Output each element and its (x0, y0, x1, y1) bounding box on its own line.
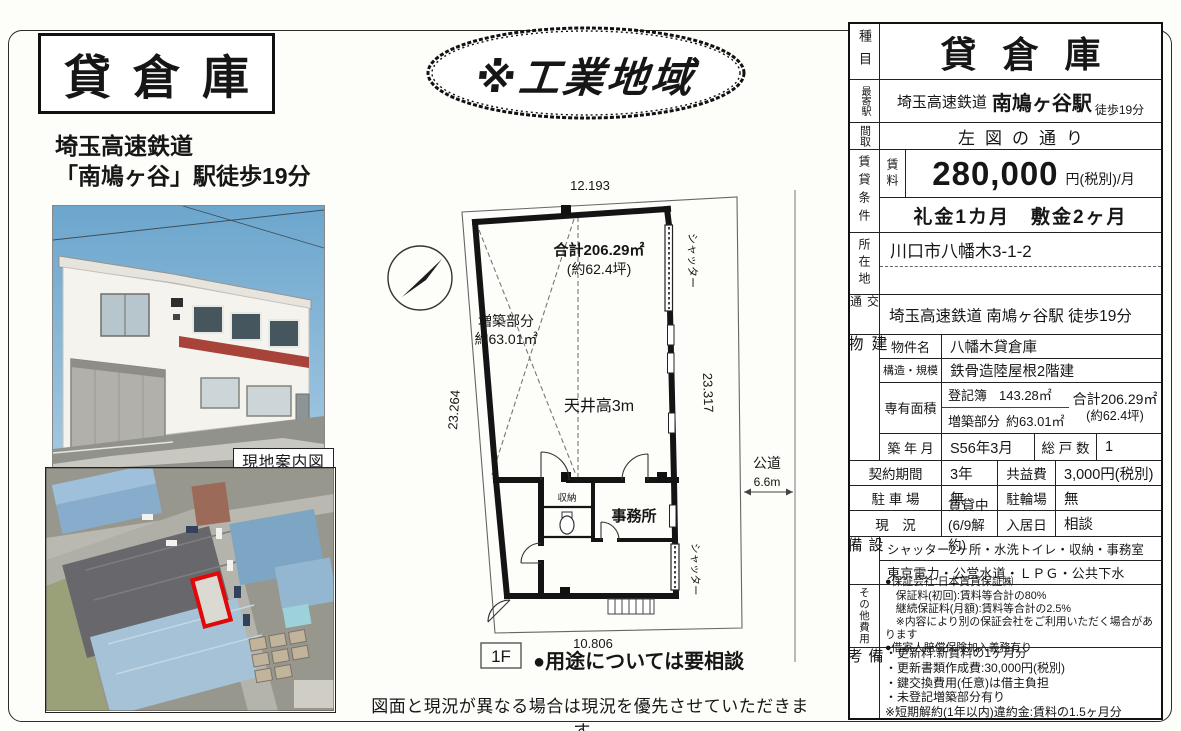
terms-label-cell: 賃貸条件 (850, 150, 880, 232)
contract-label: 契約期間 (850, 461, 942, 485)
annex-area-label: 約63.01㎡ (474, 331, 537, 347)
structure-value: 鉄骨造陸屋根2階建 (942, 359, 1161, 382)
station-label: 最寄駅 (857, 86, 872, 116)
dim-right-label: 23.317 (700, 373, 716, 413)
bottom-note: 図面と現況が異なる場合は現況を優先させていただきます。 (350, 692, 830, 731)
row-transport: 交通 埼玉高速鉄道 南鳩ヶ谷駅 徒歩19分 (850, 295, 1161, 335)
status-label: 現 況 (850, 511, 942, 536)
area-reg-label: 登記簿 (948, 385, 987, 404)
spec-table: 種目 貸倉庫 最寄駅 埼玉高速鉄道 南鳩ヶ谷駅 徒歩19分 間取 左図の通り 賃… (848, 22, 1163, 720)
contract-value: 3年 (942, 461, 998, 485)
row-bname: 物件名 八幡木貸倉庫 (880, 335, 1161, 359)
shutter-lower-label: シャッター (689, 543, 701, 596)
notes-line: ・未登記増築部分有り (885, 690, 1161, 705)
total-area-tsubo-label: (約62.4坪) (567, 261, 632, 277)
station-name: 南鳩ヶ谷駅 (992, 87, 1092, 116)
address-label-cell: 所在地 (850, 233, 880, 294)
address-value: 川口市八幡木3-1-2 (880, 233, 1161, 267)
bname-label: 物件名 (880, 335, 942, 358)
building-photo (52, 205, 325, 469)
area-label: 専有面積 (880, 383, 942, 434)
bottom-note-text: 図面と現況が異なる場合は現況を優先させていただきます。 (350, 692, 830, 731)
other-fees-line: ●保証会社:日本賃貸保証㈱ (885, 576, 1161, 589)
title-box: 貸倉庫 (38, 33, 275, 114)
dim-top-label: 12.193 (570, 178, 610, 193)
aerial-map (45, 467, 336, 713)
row-contract: 契約期間 3年 共益費 3,000円(税別) (850, 461, 1161, 486)
access-text: 埼玉高速鉄道 「南鳩ヶ谷」駅徒歩19分 (55, 131, 311, 192)
rent-value: 280,000 (932, 155, 1058, 193)
notes-content: ・更新料:新賃料の1ヶ月分 ・更新書類作成費:30,000円(税別) ・鍵交換費… (880, 648, 1161, 718)
row-layout: 間取 左図の通り (850, 123, 1161, 150)
station-value: 埼玉高速鉄道 南鳩ヶ谷駅 徒歩19分 (880, 80, 1161, 122)
row-category: 種目 貸倉庫 (850, 24, 1161, 80)
rent-label: 賃料 (884, 158, 901, 190)
row-other-fees: その他費用 ●保証会社:日本賃貸保証㈱ 保証料(初回):賃料等合計の80% 継続… (850, 585, 1161, 648)
units-label: 総 戸 数 (1035, 434, 1097, 460)
total-area-label: 合計206.29㎡ (553, 241, 645, 259)
fee-label: 共益費 (998, 461, 1056, 485)
other-fees-line: ※内容により別の保証会社をご利用いただく場合があります (885, 616, 1161, 642)
road-width-label: 6.6m (754, 475, 781, 489)
bicycle-label: 駐輪場 (998, 486, 1056, 510)
bicycle-value: 無 (1056, 486, 1161, 510)
layout-value: 左図の通り (880, 123, 1161, 149)
other-fees-line: 保証料(初回):賃料等合計の80% (885, 590, 1161, 603)
area-annex-label: 増築部分 (948, 411, 1000, 430)
station-pre: 埼玉高速鉄道 (897, 91, 987, 112)
access-line-1: 埼玉高速鉄道 (55, 131, 311, 161)
area-total-tsubo: (約62.4坪) (1073, 409, 1158, 425)
transport-label: 交通 (848, 295, 882, 334)
dim-left-label: 23.264 (445, 389, 463, 430)
page-title: 貸倉庫 (42, 39, 271, 108)
rent-value-cell: 280,000 円(税別)/月 (906, 150, 1161, 197)
annex-label: 増築部分 (478, 313, 534, 329)
units-value: 1 (1097, 434, 1161, 460)
transport-label-cell: 交通 (850, 295, 880, 334)
access-line-2: 「南鳩ヶ谷」駅徒歩19分 (55, 161, 311, 191)
transport-value: 埼玉高速鉄道 南鳩ヶ谷駅 徒歩19分 (880, 295, 1161, 334)
area-annex-line: 増築部分 約63.01㎡ (942, 408, 1069, 433)
station-label-cell: 最寄駅 (850, 80, 880, 122)
building-content: 物件名 八幡木貸倉庫 構造・規模 鉄骨造陸屋根2階建 専有面積 登記簿 143.… (880, 335, 1161, 460)
rent-label-cell: 賃料 (880, 150, 906, 197)
notes-line: ・更新料:新賃料の1ヶ月分 (885, 646, 1161, 661)
row-rent: 賃料 280,000 円(税別)/月 (880, 150, 1161, 198)
fee-value: 3,000円(税別) (1056, 461, 1161, 485)
area-reg-value: 143.28㎡ (999, 385, 1052, 404)
status-value: 賃貸中(6/9解約) (942, 511, 998, 536)
building-label-cell: 建物 (850, 335, 880, 460)
area-detail: 登記簿 143.28㎡ 増築部分 約63.01㎡ (942, 383, 1069, 434)
aerial-map-image (46, 468, 334, 711)
area-reg-line: 登記簿 143.28㎡ (942, 383, 1069, 408)
row-terms: 賃貸条件 賃料 280,000 円(税別)/月 礼金1カ月 敷金2ヶ月 (850, 150, 1161, 233)
row-address: 所在地 川口市八幡木3-1-2 (850, 233, 1161, 295)
built-value: S56年3月 (942, 434, 1035, 460)
category-value: 貸倉庫 (880, 24, 1161, 79)
road-label: 公道 (753, 455, 781, 471)
notes-label-cell: 備考 (850, 648, 880, 718)
address-blank-line (880, 267, 1161, 294)
terms-label: 賃貸条件 (856, 155, 873, 227)
rent-unit: 円(税別)/月 (1066, 159, 1135, 189)
movein-value: 相談 (1056, 511, 1161, 536)
equip-label-cell: 設備 (850, 537, 880, 584)
notes-line: ・鍵交換費用(任意)は借主負担 (885, 676, 1161, 691)
row-built: 築 年 月 S56年3月 総 戸 数 1 (880, 434, 1161, 460)
category-label-cell: 種目 (850, 24, 880, 79)
usage-note: ●用途については要相談 (533, 649, 745, 673)
layout-label-cell: 間取 (850, 123, 880, 149)
structure-label: 構造・規模 (880, 359, 942, 382)
row-parking: 駐 車 場 無 駐輪場 無 (850, 486, 1161, 511)
other-fees-label: その他費用 (857, 587, 872, 645)
row-status: 現 況 賃貸中(6/9解約) 入居日 相談 (850, 511, 1161, 537)
zone-badge: ※工業地域 (424, 24, 748, 123)
address-label: 所在地 (856, 238, 873, 289)
deposit-value: 礼金1カ月 敷金2ヶ月 (880, 198, 1161, 232)
area-total-lines: 合計206.29㎡ (約62.4坪) (1073, 391, 1158, 424)
area-annex-value: 約63.01㎡ (1006, 411, 1065, 430)
building-photo-image (53, 206, 324, 468)
row-structure: 構造・規模 鉄骨造陸屋根2階建 (880, 359, 1161, 383)
shutter-right-label: シャッター (686, 233, 699, 288)
built-label: 築 年 月 (880, 434, 942, 460)
floor-plan-drawing: 12.193 23.264 23.317 10.806 合計206.29㎡ (約… (365, 175, 845, 705)
equip-line-1: シャッター2ヶ所・水洗トイレ・収納・事務室 (880, 537, 1161, 561)
office-label: 事務所 (611, 507, 656, 525)
station-walk: 徒歩19分 (1095, 101, 1144, 118)
notes-line: ・更新書類作成費:30,000円(税別) (885, 661, 1161, 676)
category-label: 種目 (855, 29, 874, 75)
storage-label: 収納 (557, 492, 576, 504)
other-fees-content: ●保証会社:日本賃貸保証㈱ 保証料(初回):賃料等合計の80% 継続保証料(月額… (880, 585, 1161, 647)
ceiling-height-label: 天井高3m (564, 397, 634, 415)
floor-plan: 12.193 23.264 23.317 10.806 合計206.29㎡ (約… (365, 175, 845, 705)
address-content: 川口市八幡木3-1-2 (880, 233, 1161, 294)
row-notes: 備考 ・更新料:新賃料の1ヶ月分 ・更新書類作成費:30,000円(税別) ・鍵… (850, 648, 1161, 718)
terms-content: 賃料 280,000 円(税別)/月 礼金1カ月 敷金2ヶ月 (880, 150, 1161, 232)
parking-label: 駐 車 場 (850, 486, 942, 510)
row-area: 専有面積 登記簿 143.28㎡ 増築部分 約63.01㎡ 合計 (880, 383, 1161, 435)
row-station: 最寄駅 埼玉高速鉄道 南鳩ヶ谷駅 徒歩19分 (850, 80, 1161, 123)
movein-label: 入居日 (998, 511, 1056, 536)
flyer-page: 貸倉庫 埼玉高速鉄道 「南鳩ヶ谷」駅徒歩19分 (0, 0, 1181, 731)
other-label-cell: その他費用 (850, 585, 880, 647)
row-building: 建物 物件名 八幡木貸倉庫 構造・規模 鉄骨造陸屋根2階建 専有面積 登記簿 1… (850, 335, 1161, 461)
notes-line: ※短期解約(1年以内)違約金:賃料の1.5ヶ月分 (885, 705, 1161, 720)
dim-bottom-label: 10.806 (573, 636, 613, 651)
zone-badge-label: ※工業地域 (419, 24, 753, 123)
other-fees-line: 継続保証料(月額):賃料等合計の2.5% (885, 603, 1161, 616)
area-total-cell: 合計206.29㎡ (約62.4坪) (1069, 383, 1161, 434)
area-total: 合計206.29㎡ (1073, 391, 1158, 409)
floor-label: 1F (491, 647, 511, 666)
layout-label: 間取 (857, 125, 873, 147)
bname-value: 八幡木貸倉庫 (942, 335, 1161, 358)
